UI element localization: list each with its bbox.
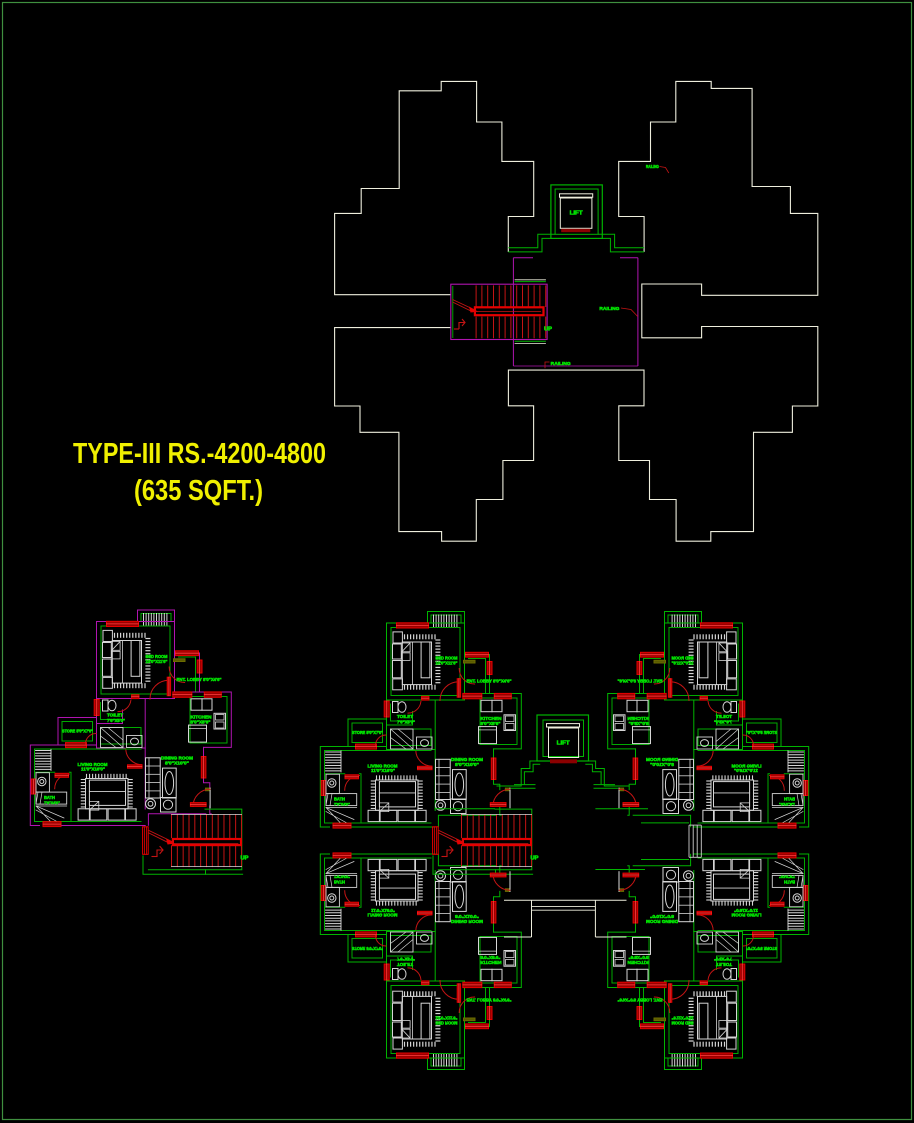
svg-text:(635 SQFT.): (635 SQFT.) <box>134 475 263 507</box>
svg-text:UP: UP <box>544 327 553 333</box>
svg-text:LIFT: LIFT <box>570 211 584 217</box>
svg-text:RAILING: RAILING <box>599 306 619 312</box>
svg-text:RAILING: RAILING <box>646 164 659 170</box>
svg-text:LIFT: LIFT <box>557 741 571 747</box>
svg-text:TYPE-III RS.-4200-4800: TYPE-III RS.-4200-4800 <box>73 438 326 470</box>
svg-text:RAILING: RAILING <box>551 361 571 367</box>
